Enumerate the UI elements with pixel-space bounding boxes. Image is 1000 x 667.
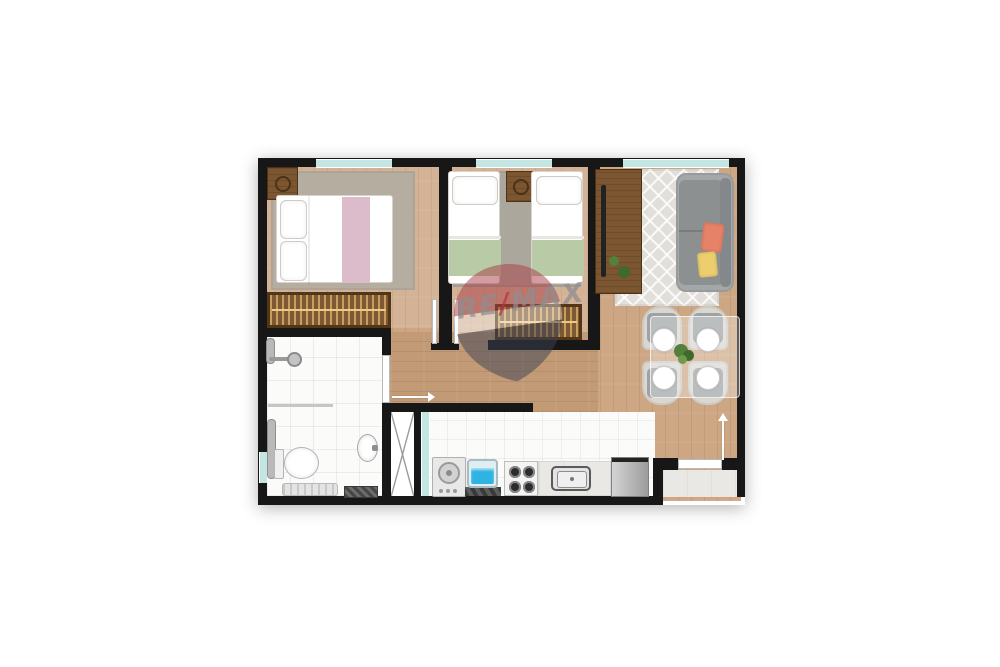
kitchen-top-wall <box>390 403 533 412</box>
floor-plan: RE/MAX <box>0 0 1000 667</box>
door-mat <box>344 486 378 498</box>
sheet-fold <box>449 236 501 239</box>
duct-shaft <box>391 412 414 497</box>
sink-drain-icon <box>570 477 574 481</box>
toilet-tank <box>274 449 284 479</box>
duvet-fold <box>308 196 310 284</box>
bedroom1-door <box>432 299 437 344</box>
wardrobe-rail <box>272 309 386 311</box>
plant-icon <box>618 266 630 278</box>
kitchen-sink <box>551 466 591 491</box>
toilet-bowl <box>284 447 319 479</box>
entry-arrow <box>722 420 724 460</box>
bedroom1-bottom-wall <box>258 328 390 337</box>
pillow <box>280 241 307 281</box>
bath-mat <box>282 483 338 496</box>
entry-wall-left <box>663 458 678 470</box>
plate <box>696 328 720 352</box>
stove <box>504 461 538 496</box>
entry-arrow-head-icon <box>718 413 728 421</box>
shower-head-icon <box>287 352 302 367</box>
shower-glass-partition <box>268 404 333 407</box>
bedroom2-window <box>476 159 552 168</box>
washer-knob <box>453 489 457 493</box>
centerpiece-plant-icon <box>678 355 687 364</box>
burner-icon <box>523 481 535 493</box>
bedroom1-window <box>316 159 392 168</box>
plate <box>696 366 720 390</box>
decor-bowl-icon <box>275 176 291 192</box>
sheet-fold <box>532 236 584 239</box>
pillow <box>452 176 498 205</box>
burner-icon <box>509 481 521 493</box>
decor-bowl-icon <box>513 179 529 195</box>
washing-machine <box>432 457 466 497</box>
pink-throw <box>342 197 370 283</box>
yellow-pillow <box>697 251 719 278</box>
laundry-glass-panel <box>421 412 430 497</box>
double-bed <box>276 195 393 283</box>
tub-water <box>471 468 494 484</box>
washer-knob <box>446 489 450 493</box>
entry-door <box>678 459 722 469</box>
fridge-top-bar <box>612 458 648 462</box>
sink-faucet-icon <box>372 445 378 451</box>
bedroom1-wardrobe <box>267 292 391 328</box>
washer-drum-center <box>446 470 452 476</box>
bathroom-right-wall-bottom <box>382 403 391 505</box>
burner-icon <box>509 466 521 478</box>
entry-wall-right <box>722 458 737 470</box>
plate <box>652 328 676 352</box>
tv-rack <box>595 169 642 294</box>
plate <box>652 366 676 390</box>
coral-pillow <box>700 222 724 253</box>
laundry-tub-stand <box>465 487 501 496</box>
burner-icon <box>523 466 535 478</box>
entrance-corridor-floor <box>663 470 737 497</box>
living-window <box>623 159 729 168</box>
refrigerator <box>611 457 649 497</box>
duct-right-wall <box>414 412 421 497</box>
sofa <box>676 173 734 292</box>
pillow <box>280 200 307 239</box>
bathroom-arrow-head-icon <box>428 392 435 402</box>
tv-icon <box>601 185 606 277</box>
bottom-wall <box>258 496 663 505</box>
watermark-re: RE <box>454 289 501 326</box>
bathroom-door <box>382 355 390 403</box>
bathroom-arrow <box>392 396 430 398</box>
bathroom-right-wall-top <box>382 328 391 355</box>
plant-icon <box>609 256 619 266</box>
laundry-tub <box>467 459 498 488</box>
washer-knob <box>439 489 443 493</box>
duct-x-icon <box>391 412 414 497</box>
pillow <box>536 176 582 205</box>
entry-step-wall <box>653 458 663 505</box>
